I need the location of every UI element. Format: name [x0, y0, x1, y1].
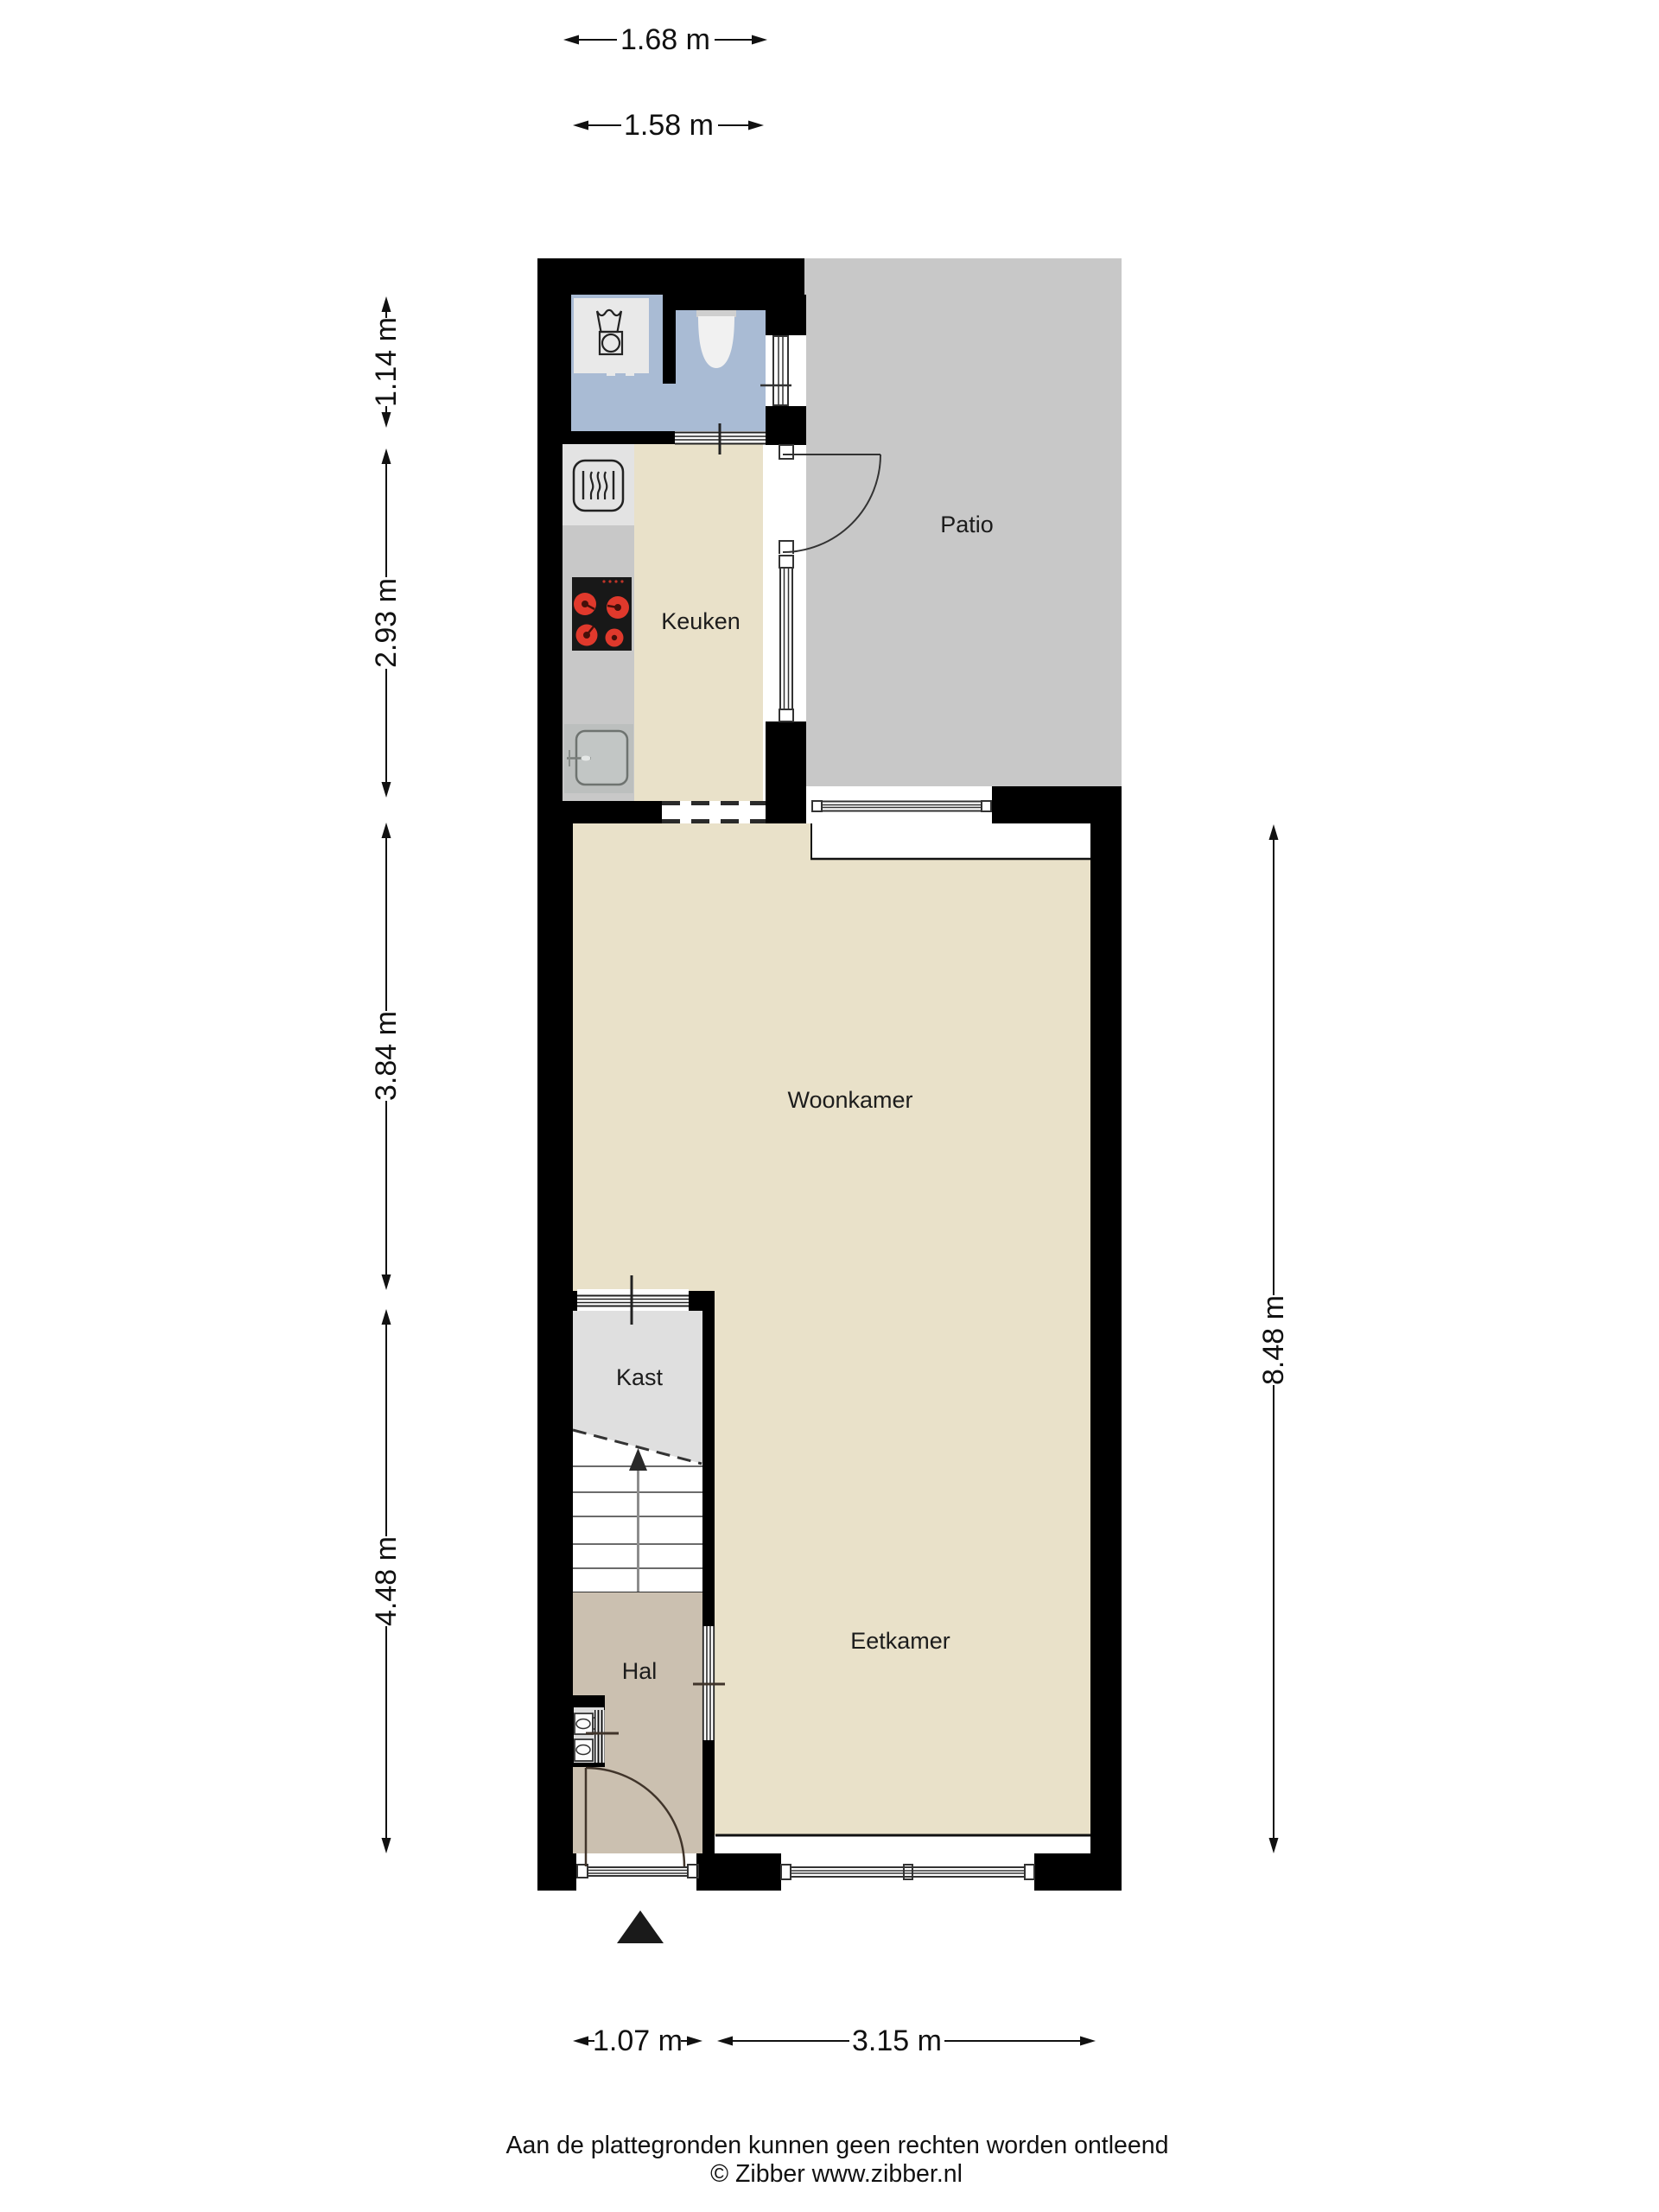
svg-text:1.14 m: 1.14 m [370, 317, 403, 407]
svg-text:4.48 m: 4.48 m [370, 1536, 403, 1626]
svg-text:8.48 m: 8.48 m [1257, 1295, 1290, 1385]
svg-text:Kast: Kast [616, 1364, 664, 1390]
svg-text:© Zibber www.zibber.nl: © Zibber www.zibber.nl [710, 2160, 963, 2188]
svg-text:1.68 m: 1.68 m [620, 23, 710, 56]
svg-text:2.93 m: 2.93 m [370, 578, 403, 668]
svg-text:3.15 m: 3.15 m [852, 2024, 942, 2057]
svg-text:Hal: Hal [622, 1658, 658, 1684]
svg-text:Aan de plattegronden kunnen ge: Aan de plattegronden kunnen geen rechten… [506, 2132, 1169, 2159]
svg-text:1.58 m: 1.58 m [624, 109, 714, 142]
svg-text:Keuken: Keuken [661, 608, 741, 634]
svg-text:1.07 m: 1.07 m [593, 2024, 683, 2057]
svg-text:Patio: Patio [940, 512, 994, 537]
svg-text:Eetkamer: Eetkamer [850, 1628, 950, 1654]
svg-text:3.84 m: 3.84 m [370, 1011, 403, 1101]
svg-text:Woonkamer: Woonkamer [787, 1087, 912, 1113]
